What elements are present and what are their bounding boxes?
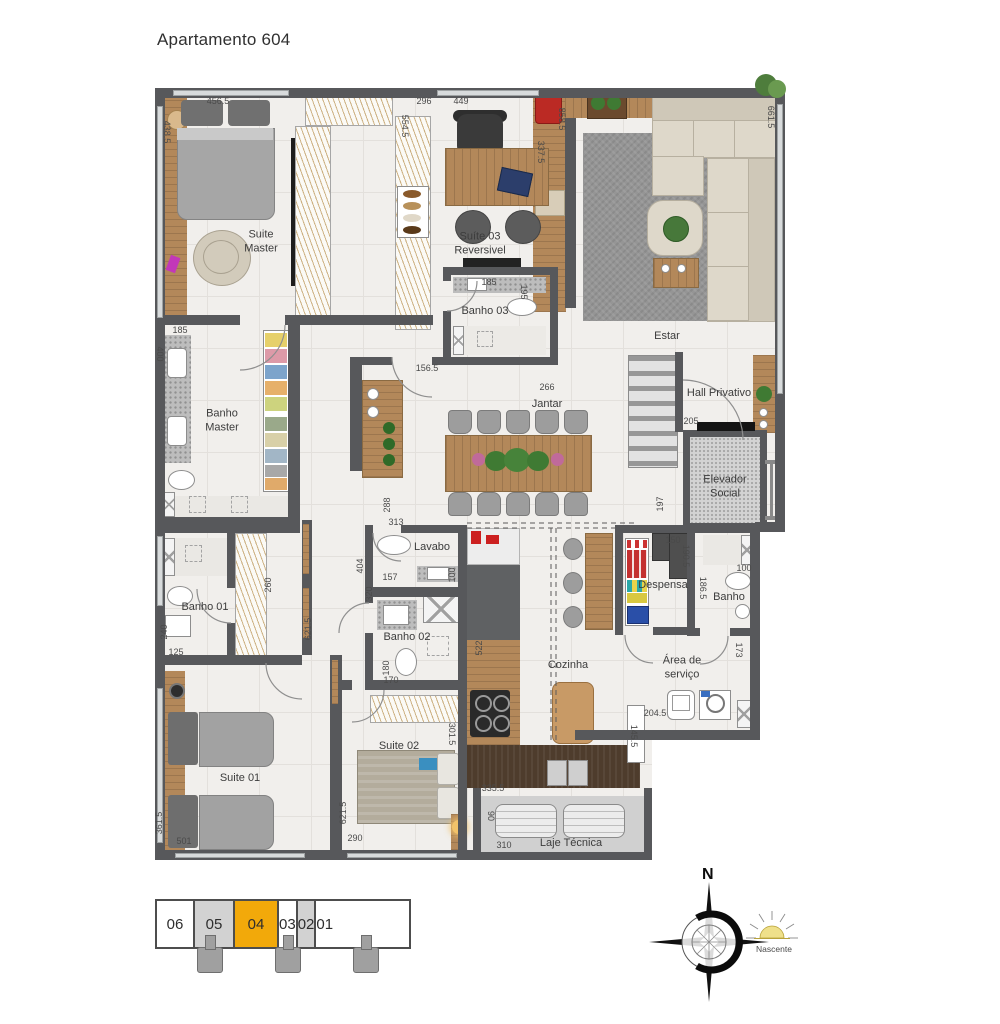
room-label: Lavabo bbox=[414, 541, 450, 555]
dimension-label: 404 bbox=[355, 558, 365, 573]
dimension-label: 313 bbox=[388, 517, 403, 527]
dimension-label: 301.5 bbox=[447, 723, 457, 746]
unit-selector: 060504030201 bbox=[155, 899, 411, 949]
ceiling-beam-dashed bbox=[467, 523, 637, 528]
unit-cell-02[interactable]: 02 bbox=[298, 901, 317, 947]
dimension-label: 150 bbox=[665, 535, 680, 545]
room-label: Cozinha bbox=[548, 659, 588, 673]
room-label: Elevador Social bbox=[703, 473, 746, 501]
door-arc bbox=[700, 636, 728, 664]
room-label: Laje Técnica bbox=[540, 837, 602, 851]
dimension-label: 296 bbox=[416, 96, 431, 106]
dimension-label: 449 bbox=[453, 96, 468, 106]
room-label: Banho 02 bbox=[383, 631, 430, 645]
dimension-label: 621.5 bbox=[303, 618, 313, 641]
door-arc bbox=[240, 325, 285, 370]
door-arc bbox=[352, 690, 384, 722]
dimension-label: 438.5 bbox=[162, 121, 172, 144]
floorplan-page: Apartamento 604 bbox=[0, 0, 1000, 1024]
dimension-label: 190.5 bbox=[681, 545, 691, 568]
dimension-label: 90 bbox=[486, 811, 496, 821]
compass-spokes bbox=[692, 925, 726, 959]
dimension-label: 185 bbox=[481, 277, 496, 287]
dimension-label: 185 bbox=[172, 325, 187, 335]
dimension-label: 197 bbox=[655, 496, 665, 511]
dimension-label: 266 bbox=[539, 382, 554, 392]
dimension-label: 320 bbox=[364, 586, 374, 601]
dimension-label: 337.5 bbox=[536, 141, 546, 164]
nascente-label: Nascente bbox=[742, 944, 806, 954]
dimension-label: 400 bbox=[155, 346, 165, 361]
door-swing-arcs bbox=[155, 88, 785, 860]
dimension-label: 100 bbox=[447, 567, 457, 582]
door-arc bbox=[373, 533, 401, 561]
page-title: Apartamento 604 bbox=[157, 30, 290, 50]
dimension-label: 100 bbox=[736, 563, 751, 573]
dimension-label: 186.5 bbox=[698, 577, 708, 600]
elevator-shaft-tab bbox=[275, 947, 301, 973]
room-label: Banho 03 bbox=[461, 305, 508, 319]
unit-cell-06[interactable]: 06 bbox=[157, 901, 195, 947]
room-label: Despensa bbox=[638, 579, 688, 593]
dimension-label: 661.5 bbox=[766, 106, 776, 129]
room-label: Estar bbox=[654, 330, 680, 344]
dimension-label: 156.5 bbox=[416, 363, 439, 373]
unit-cell-04[interactable]: 04 bbox=[235, 901, 279, 947]
elevator-shaft-tab bbox=[353, 947, 379, 973]
dimension-label: 290 bbox=[347, 833, 362, 843]
dimension-label: 145.5 bbox=[629, 725, 639, 748]
ceiling-beam-dashed bbox=[551, 528, 556, 743]
dimension-label: 621.5 bbox=[338, 802, 348, 825]
dimension-label: 125 bbox=[168, 647, 183, 657]
dimension-label: 361.5 bbox=[154, 812, 164, 835]
door-arc bbox=[339, 603, 369, 633]
dimension-label: 204.5 bbox=[644, 708, 667, 718]
dimension-label: 173 bbox=[734, 642, 744, 657]
room-label: Banho bbox=[713, 591, 745, 605]
dimension-label: 522 bbox=[474, 640, 484, 655]
floorplan: Suite MasterSuíte 03 ReversivelBanho 03E… bbox=[155, 88, 785, 860]
dimension-label: 170 bbox=[383, 675, 398, 685]
dimension-label: 501 bbox=[176, 836, 191, 846]
room-label: Suite 02 bbox=[379, 740, 419, 754]
door-arc bbox=[625, 635, 653, 663]
room-label: Banho Master bbox=[205, 407, 239, 435]
dimension-label: 195 bbox=[519, 284, 529, 299]
room-label: Suite 01 bbox=[220, 772, 260, 786]
room-label: Jantar bbox=[532, 398, 563, 412]
room-label: Hall Privativo bbox=[687, 387, 751, 401]
unit-cell-01[interactable]: 01 bbox=[316, 901, 333, 947]
elevator-shaft-tab bbox=[197, 947, 223, 973]
dimension-label: 335.5 bbox=[482, 783, 505, 793]
room-label: Suíte 03 Reversivel bbox=[454, 230, 505, 258]
sunrise-marker: Nascente bbox=[742, 908, 806, 954]
dimension-label: 858.5 bbox=[557, 108, 567, 131]
dimension-label: 554.5 bbox=[400, 115, 410, 138]
dimension-label: 260 bbox=[263, 577, 273, 592]
dimension-label: 310 bbox=[496, 840, 511, 850]
room-label: Área de serviço bbox=[663, 654, 702, 682]
room-label: Suite Master bbox=[244, 228, 278, 256]
dimension-label: 180 bbox=[381, 660, 391, 675]
dimension-label: 288 bbox=[382, 497, 392, 512]
dimension-label: 157 bbox=[382, 572, 397, 582]
dimension-label: 240 bbox=[159, 624, 169, 639]
dimension-label: 205 bbox=[683, 416, 698, 426]
dimension-label: 456.5 bbox=[207, 96, 230, 106]
door-arc bbox=[266, 663, 302, 699]
sunrise-icon bbox=[742, 908, 806, 944]
room-label: Banho 01 bbox=[181, 601, 228, 615]
